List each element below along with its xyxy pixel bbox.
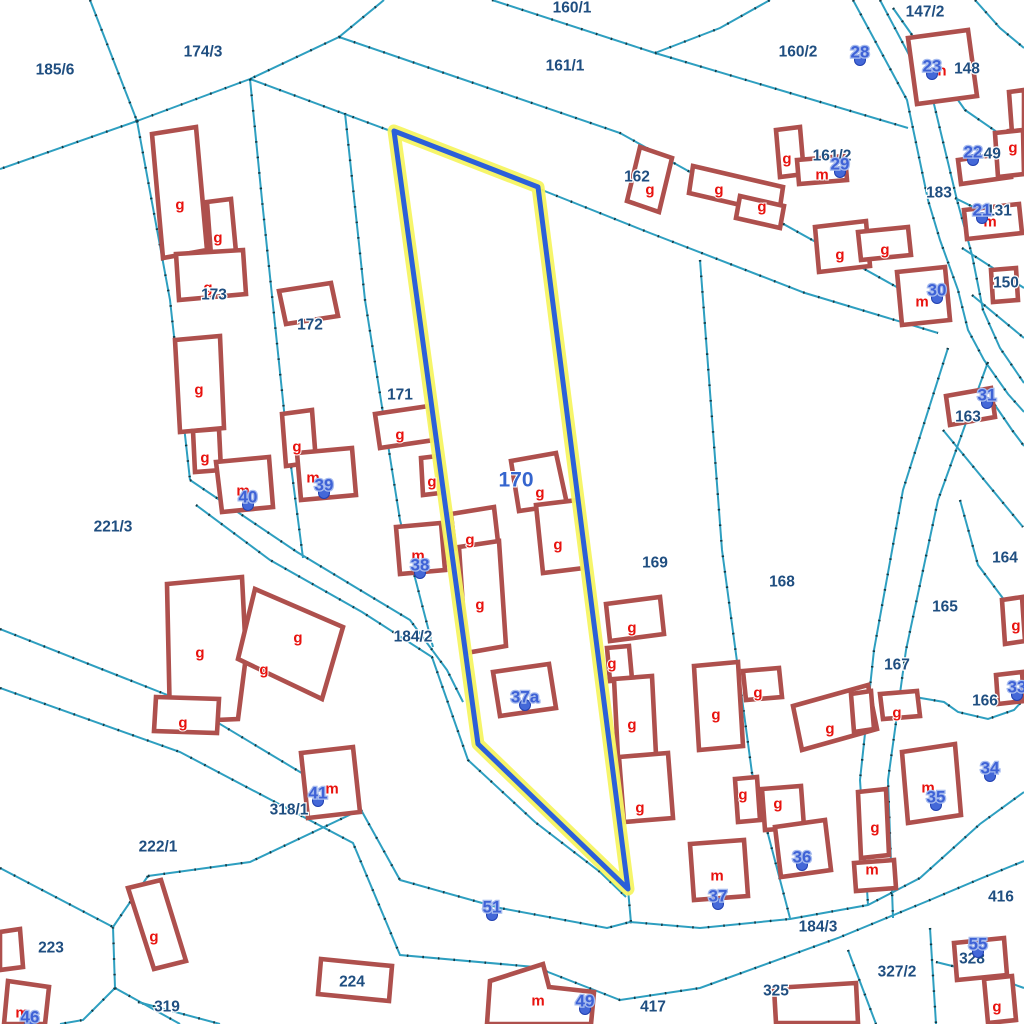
parcel-number-label: 166 [972, 693, 998, 710]
house-number-marker[interactable]: 34 [981, 759, 1000, 778]
building-use-letter: g [835, 247, 844, 264]
building-use-letter: g [427, 474, 436, 491]
house-number-marker[interactable]: 36 [793, 848, 812, 867]
parcel-number-label: 174/3 [184, 44, 223, 61]
house-number-marker[interactable]: 30 [928, 281, 947, 300]
house-number-marker[interactable]: 22 [964, 143, 983, 162]
parcel-number-label: 165 [932, 599, 958, 616]
building-use-letter: g [892, 705, 901, 722]
house-number-marker[interactable]: 21 [973, 201, 992, 220]
parcel-number-label: 162 [624, 169, 650, 186]
building-use-letter: g [475, 597, 484, 614]
house-number-marker[interactable]: 39 [315, 476, 334, 495]
building-use-letter: g [259, 662, 268, 679]
parcel-number-label: 160/1 [553, 0, 592, 17]
house-number-marker[interactable]: 38 [411, 556, 430, 575]
parcel-number-label: 223 [38, 940, 64, 957]
building-use-letter: g [293, 630, 302, 647]
building-use-letter: g [194, 382, 203, 399]
building-use-letter: g [535, 485, 544, 502]
selected-parcel-number-label: 170 [498, 469, 533, 492]
building-use-letter: g [782, 151, 791, 168]
parcel-number-label: 327/2 [878, 964, 917, 981]
house-number-marker[interactable]: 37a [511, 688, 540, 707]
house-number-marker[interactable]: 49 [576, 992, 595, 1011]
house-number-marker[interactable]: 29 [831, 155, 850, 174]
building-use-letter: g [714, 182, 723, 199]
building-outline [851, 691, 874, 732]
house-number-marker[interactable]: 28 [851, 43, 870, 62]
building-use-letter: g [213, 230, 222, 247]
parcel-number-label: 184/3 [799, 919, 838, 936]
building-use-letter: g [880, 242, 889, 259]
parcel-number-label: 318/1 [270, 802, 309, 819]
parcel-number-label: 185/6 [36, 62, 75, 79]
building-use-letter: g [753, 685, 762, 702]
parcel-number-label: 167 [884, 657, 910, 674]
building-use-letter: g [825, 721, 834, 738]
house-number-marker[interactable]: 31 [978, 386, 997, 405]
building-use-letter: g [195, 645, 204, 662]
building-use-letter: m [531, 993, 544, 1010]
parcel-number-label: 164 [992, 550, 1018, 567]
building-use-letter: g [292, 439, 301, 456]
building-outline [0, 929, 23, 970]
building-use-letter: g [178, 715, 187, 732]
cadastral-map[interactable]: gggggmgmggmggggggggmggngmmggggggggggggmm… [0, 0, 1024, 1024]
building-use-letter: m [815, 167, 828, 184]
house-number-marker[interactable]: 40 [239, 488, 258, 507]
house-number-marker[interactable]: 23 [923, 57, 942, 76]
parcel-number-label: 171 [387, 387, 413, 404]
parcel-number-label: 184/2 [394, 629, 433, 646]
house-number-marker[interactable]: 41 [309, 784, 328, 803]
parcel-number-label: 224 [339, 974, 365, 991]
building-use-letter: g [711, 707, 720, 724]
parcel-number-label: 417 [640, 999, 666, 1016]
cadastral-map-viewport[interactable]: gggggmgmggmggggggggmggngmmggggggggggggmm… [0, 0, 1024, 1024]
parcel-number-label: 148 [954, 61, 980, 78]
building-use-letter: g [175, 197, 184, 214]
house-number-marker[interactable]: 55 [969, 935, 988, 954]
house-number-marker[interactable]: 35 [927, 788, 946, 807]
building-use-letter: g [738, 787, 747, 804]
parcel-number-label: 150 [993, 275, 1019, 292]
building-use-letter: g [635, 800, 644, 817]
building-outline [1009, 90, 1024, 133]
building-use-letter: g [1008, 140, 1017, 157]
house-number-marker[interactable]: 46 [21, 1008, 40, 1024]
building-use-letter: g [607, 656, 616, 673]
building-outline [207, 199, 236, 255]
building-use-letter: g [149, 929, 158, 946]
house-number-marker[interactable]: 33 [1008, 678, 1024, 697]
building-use-letter: g [627, 717, 636, 734]
parcel-number-label: 168 [769, 574, 795, 591]
parcel-number-label: 221/3 [94, 519, 133, 536]
building-use-letter: g [465, 532, 474, 549]
building-use-letter: g [395, 427, 404, 444]
building-use-letter: g [627, 620, 636, 637]
building-use-letter: g [773, 796, 782, 813]
parcel-number-label: 160/2 [779, 44, 818, 61]
parcel-number-label: 163 [955, 409, 981, 426]
parcel-number-label: 222/1 [139, 839, 178, 856]
building-use-letter: m [865, 862, 878, 879]
parcel-number-label: 319 [154, 999, 180, 1016]
parcel-number-label: 416 [988, 889, 1014, 906]
house-number-marker[interactable]: 51 [483, 898, 502, 917]
building-use-letter: m [710, 868, 723, 885]
building-outline [619, 753, 673, 822]
building-use-letter: g [553, 537, 562, 554]
building-outline [152, 127, 207, 258]
parcel-number-label: 183 [926, 185, 952, 202]
building-use-letter: g [757, 199, 766, 216]
parcel-number-label: 147/2 [906, 4, 945, 21]
building-use-letter: g [200, 450, 209, 467]
building-use-letter: g [1011, 618, 1020, 635]
house-number-marker[interactable]: 37 [709, 887, 728, 906]
parcel-number-label: 161/1 [546, 58, 585, 75]
parcel-number-label: 169 [642, 555, 668, 572]
parcel-number-label: 325 [763, 983, 789, 1000]
building-use-letter: g [992, 999, 1001, 1016]
building-use-letter: g [870, 820, 879, 837]
parcel-number-label: 172 [297, 317, 323, 334]
parcel-number-label: 173 [201, 287, 227, 304]
